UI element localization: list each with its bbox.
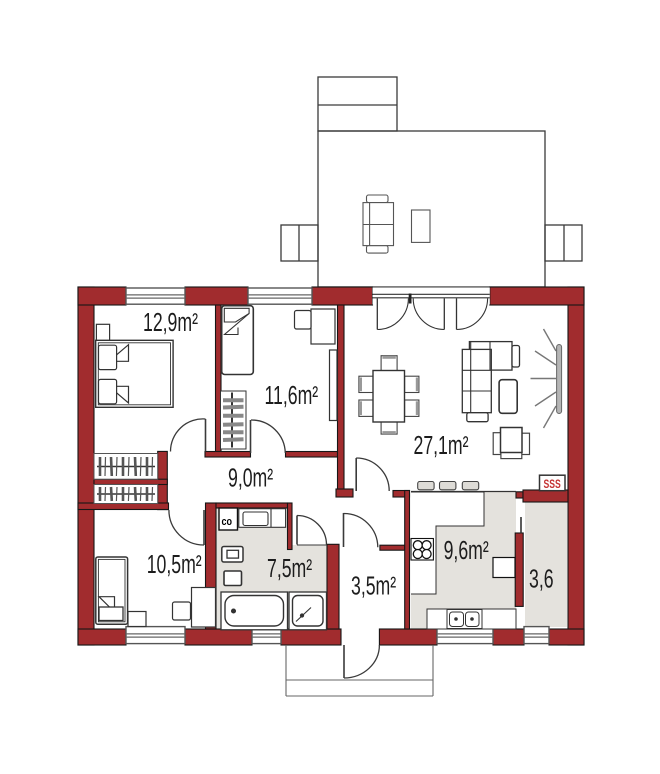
svg-text:7,5m²: 7,5m²	[267, 554, 312, 583]
svg-text:12,9m²: 12,9m²	[143, 308, 198, 337]
svg-text:11,6m²: 11,6m²	[265, 381, 319, 410]
svg-text:3,5m²: 3,5m²	[351, 571, 396, 600]
svg-text:9,0m²: 9,0m²	[228, 463, 273, 492]
svg-text:27,1m²: 27,1m²	[414, 431, 469, 460]
svg-text:3,6: 3,6	[529, 564, 554, 593]
svg-text:9,6m²: 9,6m²	[444, 536, 489, 565]
svg-text:co: co	[222, 516, 233, 528]
svg-text:10,5m²: 10,5m²	[147, 550, 202, 579]
svg-text:SSS: SSS	[544, 479, 561, 491]
